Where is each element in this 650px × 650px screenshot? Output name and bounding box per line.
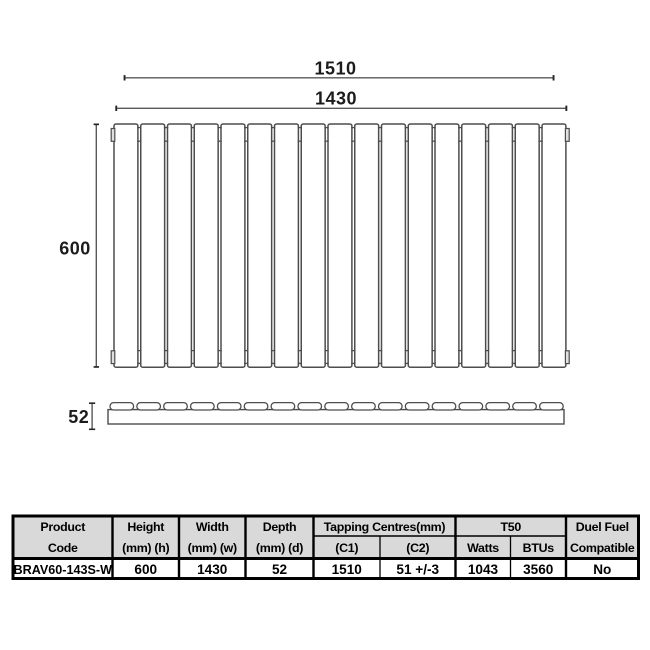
svg-text:Watts: Watts xyxy=(467,541,499,555)
svg-text:Height: Height xyxy=(127,520,164,534)
svg-text:Compatible: Compatible xyxy=(570,541,635,555)
svg-text:BRAV60-143S-W: BRAV60-143S-W xyxy=(14,563,113,577)
svg-text:No: No xyxy=(593,562,611,577)
svg-text:Code: Code xyxy=(48,541,78,555)
svg-text:52: 52 xyxy=(68,407,89,427)
svg-text:52: 52 xyxy=(272,562,288,577)
svg-text:T50: T50 xyxy=(501,520,522,534)
svg-text:(mm) (h): (mm) (h) xyxy=(122,541,169,555)
svg-text:600: 600 xyxy=(59,239,91,259)
svg-text:BTUs: BTUs xyxy=(523,541,555,555)
svg-text:1510: 1510 xyxy=(314,58,356,78)
svg-text:Width: Width xyxy=(196,520,229,534)
svg-text:600: 600 xyxy=(134,562,157,577)
svg-text:3560: 3560 xyxy=(523,562,553,577)
svg-text:Duel Fuel: Duel Fuel xyxy=(576,520,629,534)
svg-text:1430: 1430 xyxy=(315,88,357,108)
svg-text:(C1): (C1) xyxy=(335,541,358,555)
svg-text:(mm) (d): (mm) (d) xyxy=(256,541,303,555)
svg-text:(C2): (C2) xyxy=(406,541,429,555)
svg-text:51 +/-3: 51 +/-3 xyxy=(396,562,439,577)
svg-text:1510: 1510 xyxy=(332,562,362,577)
svg-text:1043: 1043 xyxy=(468,562,499,577)
svg-text:1430: 1430 xyxy=(197,562,227,577)
svg-text:Depth: Depth xyxy=(263,520,297,534)
svg-text:(mm) (w): (mm) (w) xyxy=(188,541,237,555)
svg-text:Product: Product xyxy=(40,520,85,534)
svg-text:Tapping Centres(mm): Tapping Centres(mm) xyxy=(324,520,446,534)
